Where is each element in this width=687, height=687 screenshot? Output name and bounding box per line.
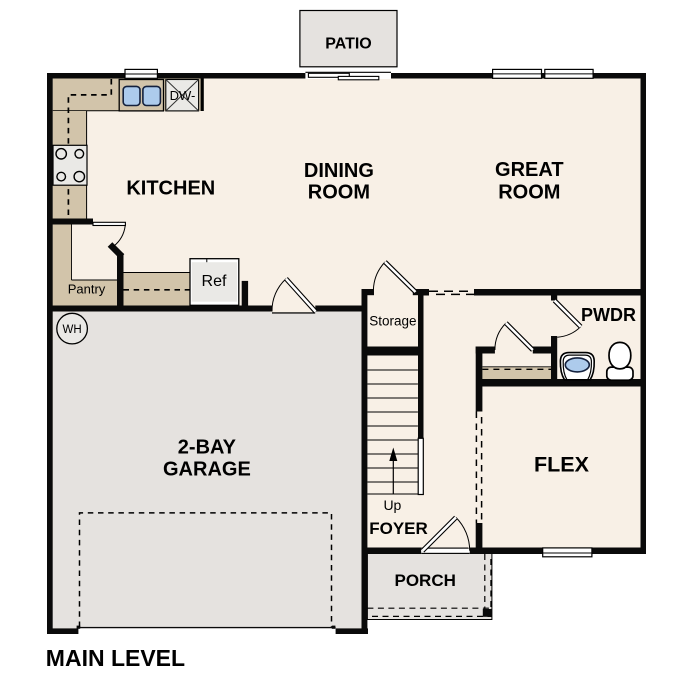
svg-text:PWDR: PWDR — [581, 305, 636, 325]
svg-text:ROOM: ROOM — [498, 182, 560, 204]
svg-text:ROOM: ROOM — [308, 181, 370, 203]
svg-text:DINING: DINING — [304, 160, 374, 182]
svg-text:2-BAY: 2-BAY — [178, 436, 237, 458]
svg-text:PORCH: PORCH — [394, 571, 455, 590]
svg-text:Up: Up — [383, 497, 401, 513]
svg-text:DW-: DW- — [170, 88, 196, 103]
svg-text:FOYER: FOYER — [369, 519, 428, 538]
svg-text:Pantry: Pantry — [68, 282, 106, 297]
svg-text:KITCHEN: KITCHEN — [126, 178, 215, 200]
svg-text:FLEX: FLEX — [534, 453, 590, 477]
svg-text:MAIN LEVEL: MAIN LEVEL — [46, 645, 185, 671]
svg-text:Ref: Ref — [202, 273, 227, 290]
svg-text:GARAGE: GARAGE — [163, 459, 251, 481]
svg-text:GREAT: GREAT — [495, 159, 564, 181]
svg-text:Storage: Storage — [369, 314, 416, 329]
svg-text:WH: WH — [63, 324, 82, 336]
svg-text:PATIO: PATIO — [325, 36, 372, 53]
